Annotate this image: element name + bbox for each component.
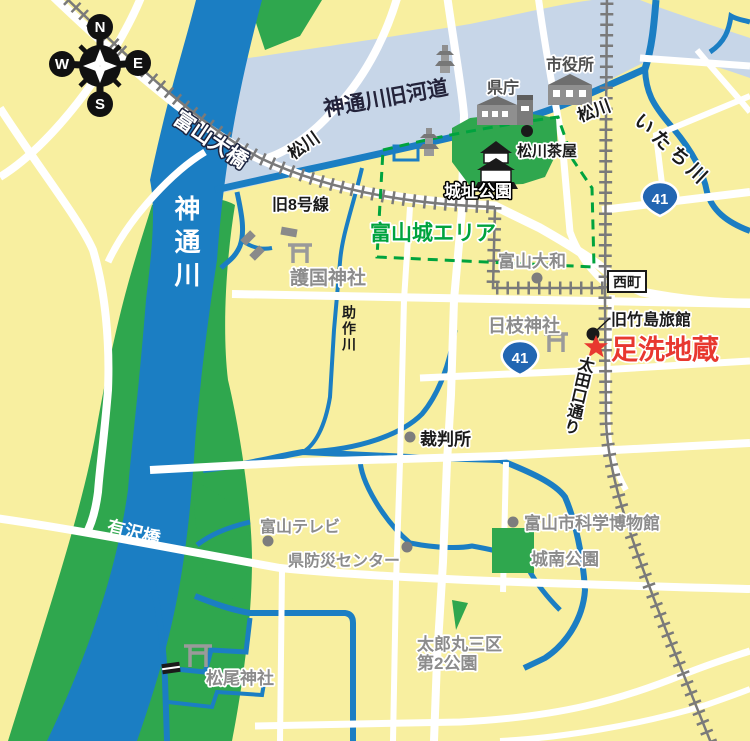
- castle-area-label: 富山城エリア: [370, 221, 496, 245]
- toyama-daiwa-label: 富山大和: [498, 251, 566, 271]
- route41-number-2: 41: [512, 350, 529, 367]
- courthouse-label: 裁判所: [420, 429, 471, 449]
- matsukawa-chaya-label: 松川茶屋: [517, 142, 577, 160]
- toyama-tv-label: 富山テレビ: [260, 517, 340, 536]
- city-hall-label: 市役所: [546, 55, 594, 74]
- matsuo-shrine-label: 松尾神社: [206, 668, 274, 688]
- takeshima-label: 旧竹島旅館: [611, 310, 691, 329]
- compass-e: E: [133, 55, 143, 72]
- old-route8-label: 旧8号線: [272, 195, 329, 214]
- sukesaku-river-label: 助作川: [341, 304, 357, 353]
- science-museum-dot: [508, 517, 519, 528]
- toyama-tv-dot: [263, 536, 274, 547]
- nishicho-sign: 西町: [608, 271, 646, 292]
- compass-n: N: [95, 19, 106, 36]
- jinzu-river-label: 神通川: [171, 195, 201, 294]
- illustrated-map: N E S W: [0, 0, 750, 741]
- disaster-center-label: 県防災センター: [288, 551, 400, 570]
- toyama-daiwa-dot: [532, 273, 543, 284]
- prefectural-office-label: 県庁: [487, 78, 519, 97]
- taromaru-line2-label: 第2公園: [417, 653, 477, 673]
- jonan-park-area: [492, 528, 534, 573]
- matsukawa-chaya-dot: [521, 125, 533, 137]
- taromaru-line1-label: 太郎丸三区: [417, 634, 502, 654]
- jonan-park-label: 城南公園: [531, 549, 599, 569]
- disaster-center-dot: [402, 542, 413, 553]
- joshi-park-label: 城址公園: [444, 182, 512, 201]
- courthouse-dot: [405, 432, 416, 443]
- ashiarai-jizo-label: 足洗地蔵: [611, 335, 719, 365]
- hie-shrine-label: 日枝神社: [488, 315, 560, 336]
- map-canvas: N E S W: [0, 0, 750, 741]
- gokoku-shrine-label: 護国神社: [290, 266, 366, 289]
- nishicho-label: 西町: [613, 274, 641, 290]
- compass-s: S: [95, 96, 105, 113]
- science-museum-label: 富山市科学博物館: [524, 513, 660, 533]
- route41-number-1: 41: [652, 191, 669, 208]
- compass-w: W: [55, 56, 70, 73]
- road-vertical-282: [280, 570, 282, 741]
